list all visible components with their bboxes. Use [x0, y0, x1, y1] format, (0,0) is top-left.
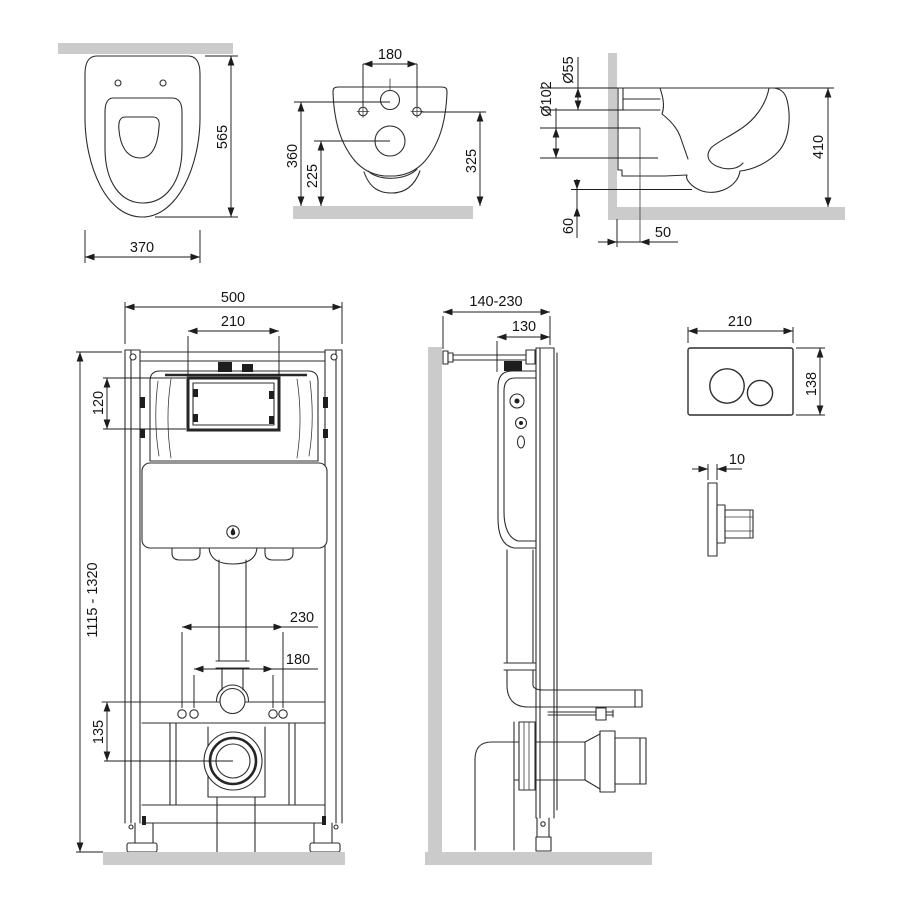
valve-port-center — [519, 421, 523, 425]
dim-label: 210 — [221, 314, 245, 330]
rail-clamp — [323, 397, 328, 408]
frame-front-view: 500 210 120 1115 - 1320 230 180 — [76, 290, 345, 865]
dim-label: 138 — [804, 372, 820, 396]
wall-anchor-collar — [448, 353, 453, 362]
toilet-outline — [85, 56, 200, 217]
flush-button-small — [747, 380, 772, 405]
dim-label: Ø55 — [561, 56, 577, 83]
bolt-hole-outer-left — [178, 710, 186, 718]
top-screw-right — [331, 354, 337, 360]
window-clip — [269, 391, 274, 399]
rod-nut — [596, 708, 606, 720]
dim-label: 180 — [378, 47, 402, 63]
dim-label: 130 — [512, 319, 536, 335]
dim-label: 60 — [561, 218, 577, 234]
dim-height: 410 — [811, 88, 828, 207]
drain-connector — [615, 738, 646, 784]
dim-label: 500 — [221, 290, 245, 306]
wall-section — [58, 43, 233, 54]
drain-fitting — [519, 722, 535, 790]
cistern-cap — [504, 361, 522, 371]
window-clip — [193, 389, 198, 397]
frame-rail-side — [536, 348, 557, 818]
floor-section — [425, 852, 652, 865]
frame-side-view: 140-230 130 — [425, 294, 652, 865]
dim-plate-width: 210 — [688, 314, 793, 343]
drain-flange — [600, 731, 615, 792]
flush-plate-profile — [708, 483, 717, 556]
dim-label: 50 — [655, 225, 671, 241]
flush-plate-view: 210 138 10 — [688, 314, 825, 556]
foot-side — [537, 818, 549, 837]
dim-label: Ø102 — [539, 81, 555, 116]
dim-label: 565 — [215, 125, 231, 149]
foot-screw-left — [129, 825, 133, 829]
dim-inner-bolt-spacing: 180 — [194, 652, 318, 708]
window-clip — [193, 414, 198, 422]
dim-label: 1115 - 1320 — [85, 562, 101, 637]
flush-pipe-side — [504, 550, 552, 707]
dim-label: 210 — [728, 314, 752, 330]
drain-cone — [585, 734, 600, 789]
plate-mechanism-step1 — [717, 505, 725, 543]
flush-button-large — [710, 369, 744, 403]
bolt-hole-inner-right — [269, 710, 277, 718]
pipe-guides — [172, 548, 293, 564]
flush-bend — [220, 689, 245, 714]
valve-button-center — [515, 399, 520, 404]
wall-section — [428, 347, 442, 852]
window-clip — [269, 416, 274, 424]
top-crossbar — [140, 352, 325, 361]
dim-label: 180 — [286, 652, 310, 668]
dim-label: 410 — [811, 135, 827, 159]
dimension-drawing: 565 370 180 360 225 — [0, 0, 900, 900]
fill-valve-cap — [218, 362, 232, 372]
dim-label: 230 — [290, 610, 314, 626]
bolt-hole-inner-left — [190, 710, 198, 718]
support-bar — [102, 702, 325, 723]
flush-inlet-hole — [381, 91, 400, 110]
dim-label: 370 — [130, 240, 154, 256]
dim-frame-height-range: 1115 - 1320 — [76, 352, 122, 852]
rail-clamp — [140, 397, 145, 408]
dim-label: 135 — [91, 720, 107, 744]
dim-window-width: 210 — [188, 314, 279, 376]
foot-screw-right — [334, 825, 338, 829]
foot-clamp-right — [322, 816, 326, 825]
bolt-hole-outer-right — [279, 710, 287, 718]
dim-label: 140-230 — [469, 294, 522, 310]
plate-mechanism-step2 — [725, 510, 753, 538]
wall-anchor — [443, 351, 448, 364]
feet-posts — [135, 823, 332, 843]
floor-section — [608, 207, 845, 220]
wall-bracket-rod — [452, 355, 526, 360]
bottom-crossbar — [142, 805, 325, 823]
toilet-top-view: 565 370 — [58, 43, 238, 263]
dim-label: 10 — [729, 452, 745, 468]
foot-plate-left — [127, 843, 157, 852]
dim-label: 360 — [285, 144, 301, 168]
dim-label: 225 — [305, 164, 321, 188]
toilet-side-view: Ø55 Ø102 410 60 50 — [539, 53, 845, 247]
technical-drawing-page: 565 370 180 360 225 — [0, 0, 900, 900]
floor-section — [103, 852, 345, 865]
floor-section — [293, 206, 473, 219]
rail-clamp — [140, 429, 145, 438]
cistern-cover — [142, 463, 327, 548]
foot-plate-right — [310, 843, 340, 852]
foot-plate-side — [536, 837, 551, 851]
dim-plate-thickness: 10 — [692, 452, 745, 480]
dim-toilet-width: 370 — [85, 230, 200, 263]
top-screw-left — [130, 354, 136, 360]
foot-screw — [541, 822, 545, 826]
flush-pipe — [216, 560, 249, 690]
wall-section — [608, 53, 617, 207]
flush-outlet-pipe — [552, 690, 642, 707]
cistern-body — [150, 371, 318, 461]
foot-clamp-left — [142, 816, 146, 825]
dim-label: 120 — [91, 391, 107, 415]
dim-plate-height: 138 — [796, 348, 825, 415]
rail-clamp — [323, 429, 328, 438]
bracket-nut — [526, 350, 535, 364]
dim-outlet-wall-offset: 50 — [598, 219, 678, 247]
dim-label: 325 — [464, 149, 480, 173]
toilet-rear-view: 180 360 225 325 — [285, 47, 486, 219]
vent-cap — [242, 364, 253, 372]
